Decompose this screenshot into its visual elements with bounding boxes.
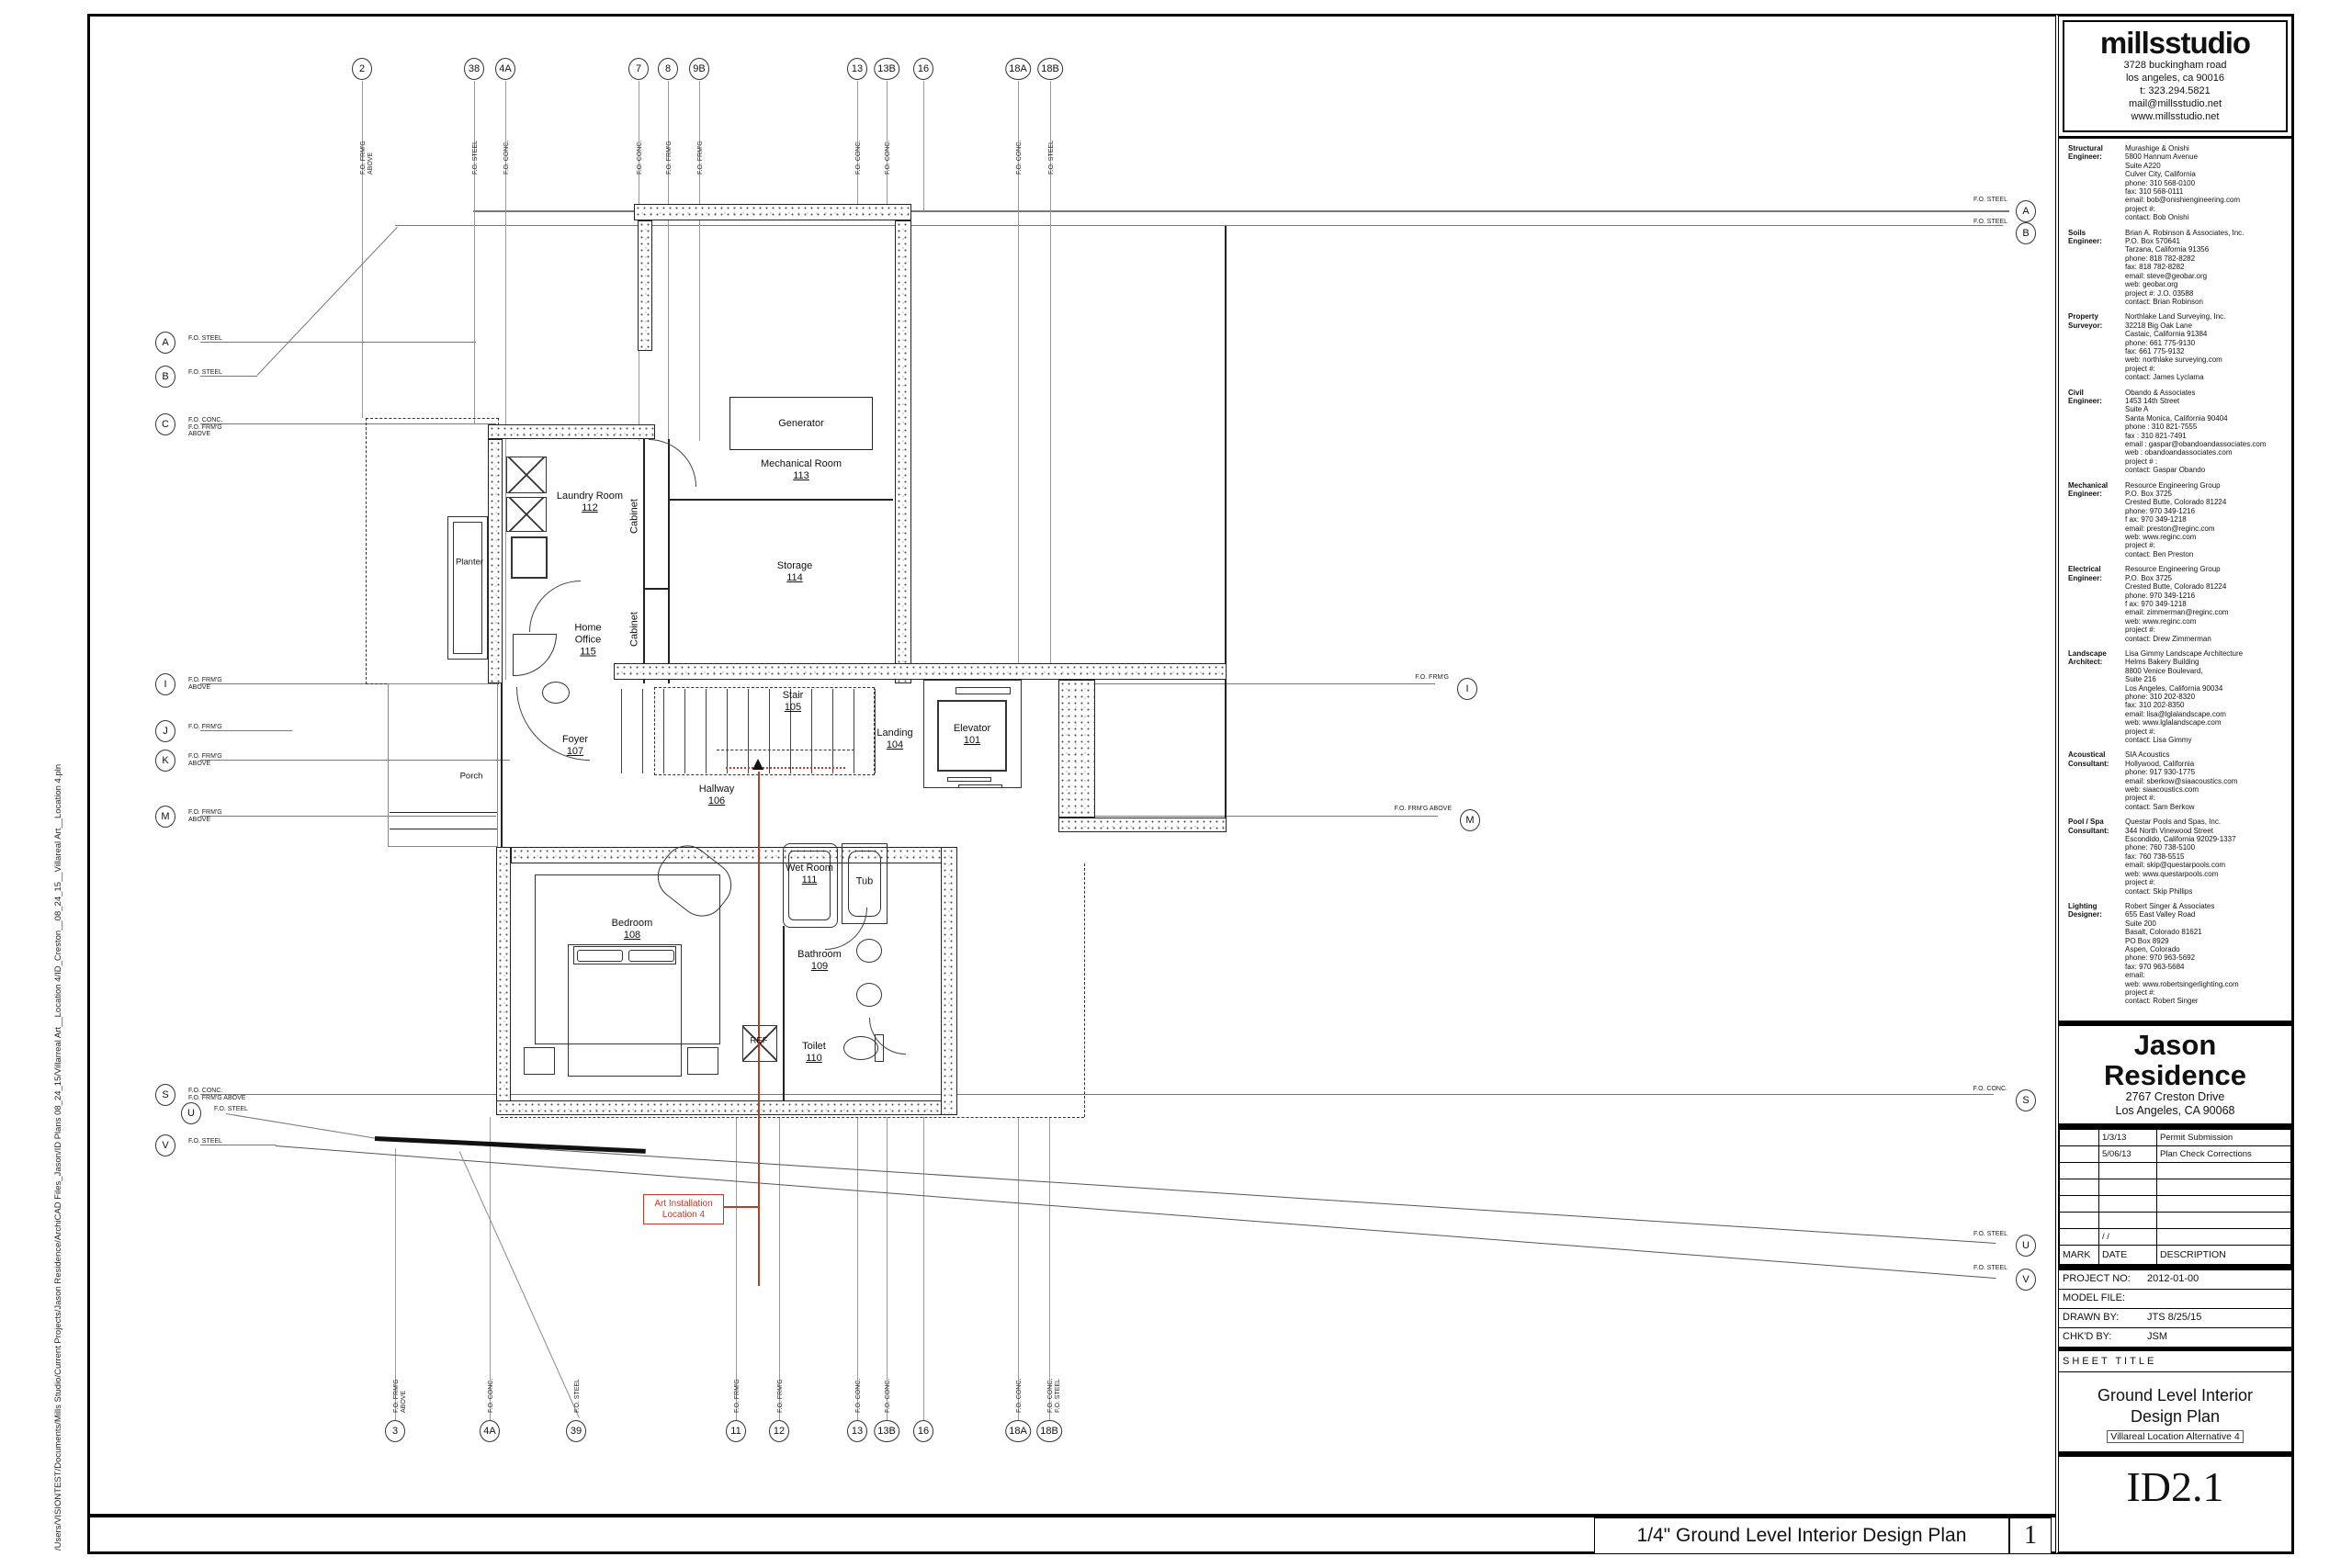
grid-note: F.O. CONC. — [488, 1379, 495, 1413]
revision-row — [2060, 1179, 2291, 1196]
grid-bubble: 7 — [628, 58, 649, 80]
consultant-entry: AcousticalConsultant:SIA AcousticsHollyw… — [2068, 750, 2286, 811]
dashed-outline — [717, 750, 854, 750]
consultant-entry: Pool / SpaConsultant:Questar Pools and S… — [2068, 818, 2286, 896]
grid-bubble: 16 — [913, 1420, 933, 1442]
firm-address-line: mail@millsstudio.net — [2066, 97, 2284, 110]
grid-bubble: 16 — [913, 58, 933, 80]
grid-bubble: U — [2016, 1235, 2036, 1257]
grid-bubble: K — [155, 750, 175, 772]
consultant-entry: LightingDesigner:Robert Singer & Associa… — [2068, 902, 2286, 1006]
firm-logo-box: millsstudio 3728 buckingham roadlos ange… — [2059, 17, 2291, 139]
grid-note: F.O. FRM'G — [777, 1379, 785, 1413]
stair-tread — [706, 689, 707, 773]
room-label-generator: Generator — [729, 397, 873, 450]
furniture — [843, 1036, 878, 1060]
stair-tread — [642, 689, 643, 773]
partition-line — [668, 499, 893, 501]
grid-note: F.O. FRM'G ABOVE — [393, 1379, 407, 1413]
furniture — [958, 784, 1002, 788]
sheet-title-line2: Design Plan — [2059, 1406, 2291, 1427]
furniture — [856, 939, 882, 963]
grid-bubble: 13B — [874, 1420, 899, 1442]
grid-row-line — [200, 342, 476, 343]
revision-row: / / — [2060, 1229, 2291, 1246]
stair-tread — [684, 689, 685, 773]
grid-bubble: 18B — [1037, 58, 1063, 80]
project-name-block: Jason Residence 2767 Creston Drive Los A… — [2059, 1026, 2291, 1129]
wall-segment — [496, 1100, 957, 1115]
firm-address: 3728 buckingham roadlos angeles, ca 9001… — [2066, 59, 2284, 123]
stair-tread — [854, 689, 854, 773]
grid-bubble: M — [1460, 809, 1480, 831]
grid-bubble: B — [2016, 222, 2036, 244]
wall-segment — [614, 663, 1227, 680]
grid-note: F.O. FRM'G ABOVE — [1314, 806, 1452, 813]
model-file-label: MODEL FILE: — [2063, 1292, 2147, 1305]
sheet-subtitle: Villareal Location Alternative 4 — [2107, 1430, 2243, 1443]
wall-segment — [1058, 818, 1227, 832]
grid-note: F.O. FRM'G — [697, 141, 705, 175]
grid-bubble: I — [155, 673, 175, 695]
grid-note: F.O. CONC. — [885, 141, 892, 175]
furniture — [453, 522, 482, 654]
furniture — [506, 457, 547, 493]
grid-column-line — [923, 1117, 924, 1420]
furniture — [947, 777, 991, 782]
grid-bubble: 4A — [495, 58, 515, 80]
grid-bubble: U — [181, 1102, 201, 1124]
room-label: Bathroom109 — [797, 949, 842, 973]
partition-line — [1225, 226, 1227, 819]
grid-note: F.O. FRM'G — [734, 1379, 741, 1413]
grid-bubble: 13 — [847, 58, 867, 80]
furniture — [577, 950, 623, 962]
furniture — [506, 497, 547, 532]
grid-bubble: A — [155, 332, 175, 354]
grid-note: F.O. CONC. — [1016, 141, 1023, 175]
grid-note: F.O. CONC. F.O. FRM'G ABOVE — [188, 1088, 245, 1101]
art-annotation-line1: Art Installation — [644, 1199, 723, 1210]
grid-note: F.O. FRM'G ABOVE — [188, 677, 222, 691]
grid-bubble: M — [155, 806, 175, 828]
furniture — [511, 536, 548, 579]
grid-note: F.O. STEEL — [1870, 197, 2007, 204]
wall-segment — [895, 220, 911, 683]
grid-bubble: 4A — [480, 1420, 500, 1442]
art-location-line — [758, 772, 760, 1286]
furniture — [542, 682, 570, 704]
chkd-by-value: JSM — [2147, 1331, 2167, 1344]
grid-bubble: C — [155, 413, 175, 435]
furniture — [628, 950, 674, 962]
wall-segment — [488, 439, 503, 683]
grid-row-line — [1095, 683, 1435, 684]
grid-note: F.O. STEEL — [574, 1379, 582, 1413]
grid-note: F.O. CONC. — [885, 1379, 892, 1413]
view-number: 1 — [2009, 1517, 2052, 1554]
consultant-entry: StructuralEngineer:Murashige & Onishi580… — [2068, 144, 2286, 222]
grid-note: F.O. CONC. F.O. FRM'G ABOVE — [188, 417, 222, 438]
grid-note: F.O. CONC. — [1870, 1086, 2007, 1093]
grid-note: F.O. FRM'G ABOVE — [188, 809, 222, 823]
wall-segment — [941, 847, 957, 1115]
grid-column-line — [362, 81, 363, 418]
stair-tread — [875, 689, 876, 773]
grid-bubble: 12 — [769, 1420, 789, 1442]
furniture — [856, 983, 882, 1007]
chkd-by-label: CHK'D BY: — [2063, 1331, 2147, 1344]
firm-name: millsstudio — [2066, 28, 2284, 59]
drawn-by-value: JTS 8/25/15 — [2147, 1312, 2201, 1325]
stair-direction-arrow — [752, 759, 763, 770]
room-label: Elevator101 — [954, 723, 990, 747]
grid-bubble: S — [155, 1084, 175, 1106]
grid-column-line — [923, 81, 924, 211]
revision-header-description: DESCRIPTION — [2157, 1246, 2291, 1265]
project-address2: Los Angeles, CA 90068 — [2059, 1104, 2291, 1118]
room-label: Mechanical Room113 — [761, 458, 842, 482]
grid-bubble: 3 — [385, 1420, 405, 1442]
consultant-entry: PropertySurveyor:Northlake Land Surveyin… — [2068, 312, 2286, 381]
partition-line — [643, 439, 645, 683]
consultant-entry: LandscapeArchitect:Lisa Gimmy Landscape … — [2068, 649, 2286, 744]
grid-bubble: 2 — [352, 58, 372, 80]
revision-row — [2060, 1163, 2291, 1179]
grid-bubble: 18A — [1005, 1420, 1031, 1442]
room-label: Wet Room111 — [786, 863, 833, 886]
dashed-outline — [501, 1117, 1084, 1118]
grid-note: F.O. STEEL — [1870, 219, 2007, 226]
grid-note: F.O. FRM'G — [188, 724, 222, 731]
furniture — [955, 687, 1011, 694]
dashed-outline — [654, 687, 875, 775]
project-info: PROJECT NO:2012-01-00 MODEL FILE: DRAWN … — [2059, 1265, 2291, 1347]
grid-column-line — [668, 81, 669, 441]
grid-column-line — [1018, 1117, 1019, 1420]
grid-bubble: 11 — [726, 1420, 746, 1442]
grid-bubble: A — [2016, 200, 2036, 222]
room-label: Foyer107 — [562, 734, 588, 758]
grid-note: F.O. FRM'G ABOVE — [360, 141, 374, 175]
grid-row-line — [1095, 816, 1438, 817]
room-label: Laundry Room112 — [557, 491, 623, 514]
project-address1: 2767 Creston Drive — [2059, 1090, 2291, 1104]
project-no-label: PROJECT NO: — [2063, 1273, 2147, 1286]
dashed-outline — [1084, 863, 1085, 1117]
grid-column-line — [779, 1117, 780, 1420]
stair-tread — [769, 689, 770, 773]
revision-row — [2060, 1196, 2291, 1213]
room-label: Cabinet — [629, 612, 641, 647]
room-label: Stair105 — [783, 690, 804, 714]
grid-note: F.O. STEEL — [1870, 1231, 2007, 1238]
stair-tread — [663, 689, 664, 773]
wall-segment — [638, 220, 652, 351]
grid-note: F.O. STEEL — [188, 335, 222, 343]
wall-segment — [1058, 680, 1095, 818]
grid-column-line — [857, 1117, 858, 1420]
room-label: Cabinet — [629, 499, 641, 534]
grid-bubble: V — [2016, 1269, 2036, 1291]
stair-tread — [811, 689, 812, 773]
stair-tread — [748, 689, 749, 773]
revision-table: 1/3/13Permit Submission5/06/13Plan Check… — [2059, 1129, 2291, 1265]
title-block: millsstudio 3728 buckingham roadlos ange… — [2055, 14, 2294, 1554]
consultant-entry: MechanicalEngineer:Resource Engineering … — [2068, 481, 2286, 559]
wall-segment — [511, 847, 957, 863]
view-title: 1/4" Ground Level Interior Design Plan — [1594, 1517, 2009, 1554]
sheet-number: ID2.1 — [2059, 1457, 2291, 1511]
grid-note: F.O. STEEL — [188, 369, 222, 377]
room-label: Tub — [856, 876, 874, 888]
grid-note: F.O. STEEL — [188, 1138, 222, 1145]
grid-bubble: 18B — [1036, 1420, 1062, 1442]
grid-bubble: 18A — [1005, 58, 1031, 80]
grid-bubble: 39 — [566, 1420, 586, 1442]
stair-tread — [621, 689, 622, 773]
wall-segment — [496, 847, 511, 1115]
grid-bubble: I — [1457, 678, 1477, 700]
revision-row: 5/06/13Plan Check Corrections — [2060, 1146, 2291, 1163]
drawing-sheet: /Users/VISIONTEST/Documents/Mills Studio… — [0, 0, 2352, 1568]
furniture — [687, 1047, 718, 1075]
grid-bubble: B — [155, 366, 175, 388]
grid-note: F.O. CONC. — [503, 141, 511, 175]
consultant-entry: CivilEngineer:Obando & Associates1453 14… — [2068, 389, 2286, 475]
consultant-list: StructuralEngineer:Murashige & Onishi580… — [2059, 139, 2291, 1026]
grid-column-line — [474, 81, 475, 424]
stair-tread — [727, 689, 728, 773]
grid-column-line — [1049, 1117, 1050, 1420]
partition-line — [783, 926, 785, 1100]
room-label: REF — [751, 1035, 768, 1047]
grid-column-line — [699, 81, 700, 441]
wall-segment — [634, 204, 911, 220]
grid-bubble: V — [155, 1134, 175, 1156]
grid-bubble: 13B — [874, 58, 899, 80]
grid-note: F.O. FRM'G ABOVE — [188, 753, 222, 767]
art-installation-annotation: Art Installation Location 4 — [643, 1194, 724, 1224]
firm-address-line: t: 323.294.5821 — [2066, 85, 2284, 97]
grid-note: F.O. CONC. — [1016, 1379, 1023, 1413]
room-label: Storage114 — [777, 560, 813, 584]
grid-bubble: J — [155, 720, 175, 742]
furniture — [875, 1034, 884, 1062]
grid-note: F.O. CONC. F.O. STEEL — [1047, 1379, 1061, 1413]
grid-row-line — [395, 225, 2003, 226]
revision-header-mark: MARK — [2060, 1246, 2099, 1265]
firm-address-line: los angeles, ca 90016 — [2066, 72, 2284, 85]
wall-segment — [488, 424, 655, 439]
consultant-entry: SoilsEngineer:Brian A. Robinson & Associ… — [2068, 229, 2286, 307]
project-name-line2: Residence — [2059, 1060, 2291, 1090]
firm-address-line: www.millsstudio.net — [2066, 110, 2284, 123]
sheet-title-line1: Ground Level Interior — [2059, 1385, 2291, 1406]
room-label: Toilet110 — [802, 1041, 826, 1065]
drawn-by-label: DRAWN BY: — [2063, 1312, 2147, 1325]
grid-row-line — [200, 1094, 1994, 1095]
grid-bubble: 13 — [847, 1420, 867, 1442]
revision-row — [2060, 1213, 2291, 1229]
furniture — [524, 1047, 555, 1075]
room-label: Porch — [460, 771, 483, 783]
grid-note: F.O. FRM'G — [1311, 674, 1449, 682]
grid-bubble: S — [2016, 1089, 2036, 1111]
grid-note: F.O. CONC. — [637, 141, 644, 175]
sheet-title-label: SHEET TITLE — [2059, 1347, 2291, 1372]
partition-line — [643, 588, 668, 590]
furniture — [388, 683, 498, 847]
grid-note: F.O. STEEL — [1048, 141, 1056, 175]
consultant-entry: ElectricalEngineer:Resource Engineering … — [2068, 565, 2286, 643]
grid-note: F.O. STEEL — [472, 141, 480, 175]
firm-address-line: 3728 buckingham road — [2066, 59, 2284, 72]
revision-row: 1/3/13Permit Submission — [2060, 1130, 2291, 1146]
room-label: Landing104 — [876, 728, 912, 751]
grid-bubble: 8 — [658, 58, 678, 80]
art-location-leader — [724, 1206, 759, 1208]
revision-header-date: DATE — [2099, 1246, 2157, 1265]
stair-red-dotted-line — [726, 767, 845, 769]
stair-tread — [832, 689, 833, 773]
partition-line — [501, 683, 503, 847]
grid-note: F.O. STEEL — [214, 1106, 248, 1113]
room-label: Home Office115 — [564, 623, 612, 659]
grid-bubble: 9B — [689, 58, 709, 80]
grid-column-line — [887, 1117, 888, 1420]
room-label: Bedroom108 — [612, 918, 653, 942]
room-label: Hallway106 — [699, 784, 735, 807]
file-path-text: /Users/VISIONTEST/Documents/Mills Studio… — [53, 209, 63, 1551]
grid-note: F.O. CONC. — [855, 141, 863, 175]
grid-note: F.O. CONC. — [855, 1379, 863, 1413]
project-name-line1: Jason — [2059, 1030, 2291, 1060]
project-no-value: 2012-01-00 — [2147, 1273, 2199, 1286]
grid-bubble: 38 — [464, 58, 484, 80]
room-label: Planter — [456, 557, 483, 569]
sheet-title-block: Ground Level Interior Design Plan Villar… — [2059, 1372, 2291, 1457]
grid-note: F.O. STEEL — [1870, 1265, 2007, 1272]
grid-note: F.O. FRM'G — [666, 141, 673, 175]
art-annotation-line2: Location 4 — [644, 1210, 723, 1221]
